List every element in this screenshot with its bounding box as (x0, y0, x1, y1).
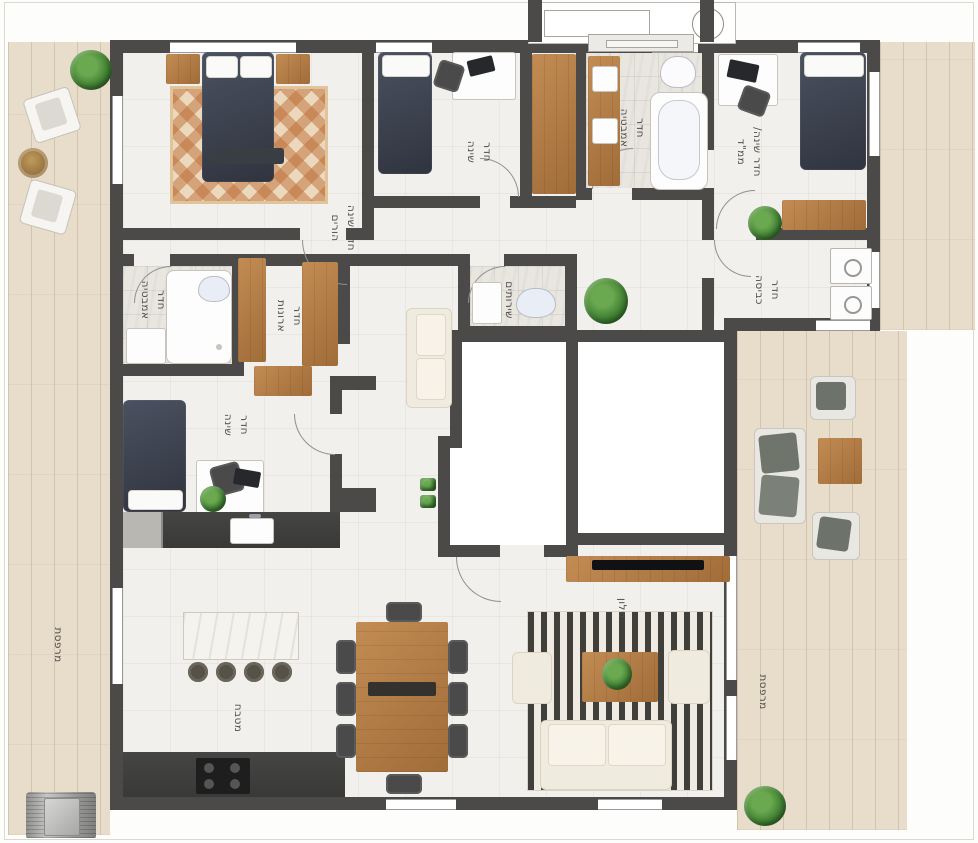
room-label-kitchen: מטבח (229, 704, 245, 732)
kitchen-island (183, 612, 299, 660)
wall-bedroom2-bottom-b (510, 196, 576, 208)
dining-chair-top (386, 602, 422, 622)
wall-bathleft-bottom (110, 364, 244, 376)
outdoor-armchair-top-cushion (816, 382, 846, 410)
dining-chair-r3 (448, 724, 468, 758)
outdoor-table (818, 438, 862, 484)
wall-wing-divider-mid (702, 188, 714, 240)
wall-bedroom2-bottom-a (362, 196, 480, 208)
wall-bath-left (576, 40, 586, 188)
round-side-table (18, 148, 48, 178)
bath-left-sink (126, 328, 166, 364)
utility-wall-stub-right (700, 0, 714, 42)
wall-core-step (438, 436, 462, 448)
room-label-bedroom3: חדר שינה (219, 414, 251, 436)
dining-chair-r2 (448, 682, 468, 716)
bar-stool-3 (244, 662, 264, 682)
stove-burner-3 (204, 779, 214, 789)
window-laundry-south (816, 320, 870, 331)
room-label-text: חדר (235, 414, 251, 436)
dining-chair-l1 (336, 640, 356, 674)
room-label-text: חדר (766, 275, 782, 305)
lounge-cushion-b (758, 474, 799, 517)
nightstand-left (166, 54, 200, 84)
mamad-pillow (804, 55, 864, 77)
hall-sofa-cushion-b (416, 358, 446, 400)
ac-panel (44, 798, 80, 836)
room-label-text: אמבטיה (136, 281, 152, 320)
utility-inner-unit (544, 10, 650, 37)
room-label-master-bedroom: חדר שינה הורים (326, 205, 358, 251)
dining-runner (368, 682, 436, 696)
room-label-wc: שירותים (500, 281, 516, 319)
room-label-text: שינה (462, 141, 478, 163)
wall-bath-bottom-a (576, 188, 592, 200)
room-label-text: חדר (631, 109, 647, 148)
dining-table (356, 622, 448, 772)
fridge (123, 512, 163, 548)
room-label-safe-room: חדר שינה/ ממ"ד (732, 127, 764, 177)
window-bottom-a (386, 799, 456, 810)
room-label-text: שינה (219, 414, 235, 436)
closet-wardrobe-right (302, 262, 338, 366)
stove-burner-4 (230, 779, 240, 789)
wall-bed3-stub-a (330, 376, 376, 390)
washing-machine (830, 248, 872, 284)
wall-core-top (450, 330, 737, 342)
lounge-cushion-a (758, 432, 800, 474)
hall-sofa-cushion-a (416, 314, 446, 356)
room-label-text: ממ"ד (732, 127, 748, 177)
closet-wardrobe-left (238, 258, 266, 362)
floor-plan: חדר שינה הורים חדר שינה חדר אמבטיה חדר ש… (0, 0, 978, 843)
wall-wing-divider-low (702, 278, 714, 331)
room-label-bathroom-left: חדר אמבטיה (136, 281, 168, 320)
bedroom3-pillow (128, 490, 183, 510)
closet-dresser (254, 366, 312, 396)
master-bench (210, 148, 284, 164)
potted-plant-balcony-right (744, 786, 786, 826)
room-label-balcony-left: מרפסת (49, 627, 65, 662)
room-label-text: חדר שינה (342, 205, 358, 251)
potted-plant-mamad (748, 206, 782, 240)
wall-corridor-a (110, 254, 134, 266)
wall-core-left-lower (438, 448, 450, 557)
wc-toilet (516, 288, 556, 318)
wall-core-bottom-left-a (438, 545, 500, 557)
window-wing-east-a (869, 72, 880, 156)
sofa-cushion-a (548, 724, 606, 766)
wall-bedroom2-right (520, 40, 532, 198)
room-label-text: ארונות (272, 300, 288, 332)
mamad-bench (782, 200, 866, 230)
room-label-balcony-right: מרפסת (754, 674, 770, 709)
potted-plant-desk (200, 486, 226, 512)
armchair-right (668, 650, 710, 704)
room-label-living-room: סלון (613, 598, 629, 618)
window-left-b (112, 588, 123, 684)
room-label-text: חדר (478, 141, 494, 163)
bar-stool-1 (188, 662, 208, 682)
room-label-closet-room: חדר ארונות (272, 300, 304, 332)
potted-plant-niche-a (420, 478, 436, 491)
room-label-bathroom-top: חדר אמבטיה (615, 109, 647, 148)
bathtub-inner (658, 100, 700, 180)
nightstand-right (276, 54, 310, 84)
room-label-text: מרפסת (49, 627, 65, 662)
utility-wall-stub-left (528, 0, 542, 42)
wall-bed3-stub-b (330, 488, 376, 512)
room-label-text: חדר (152, 281, 168, 320)
balcony-right-top-deck (880, 42, 975, 330)
wc-sink (472, 282, 502, 324)
potted-plant-coffee-table (602, 658, 632, 690)
room-label-text: חדר (288, 300, 304, 332)
dining-chair-r1 (448, 640, 468, 674)
room-label-text: מטבח (229, 704, 245, 732)
bath-top-toilet (660, 56, 696, 88)
dining-chair-l3 (336, 724, 356, 758)
room-label-text: הורים (326, 205, 342, 251)
bar-stool-4 (272, 662, 292, 682)
room-label-text: מרפסת (754, 674, 770, 709)
stair-shaft-lower (450, 448, 566, 545)
room-label-text: סלון (613, 598, 629, 618)
master-pillow-left (206, 56, 238, 78)
stove-burner-2 (230, 763, 240, 773)
sofa-cushion-b (608, 724, 666, 766)
bath-top-sink-b (592, 118, 618, 144)
dining-chair-bottom (386, 774, 422, 794)
stove (196, 758, 250, 794)
wall-master-right (362, 40, 374, 240)
dryer (830, 286, 872, 320)
potted-plant-niche-b (420, 495, 436, 508)
wall-core-bottom-right (566, 533, 737, 545)
room-label-bedroom2: חדר שינה (462, 141, 494, 163)
potted-plant-balcony-left (70, 50, 112, 90)
kitchen-faucet (249, 514, 261, 518)
shower-drain (216, 344, 222, 350)
kitchen-sink (230, 518, 274, 544)
outdoor-armchair-bottom-cushion (816, 516, 852, 552)
bath-top-sink-a (592, 66, 618, 92)
potted-plant-hall (584, 278, 628, 324)
bedroom2-pillow (382, 55, 430, 77)
bath-left-toilet (198, 276, 230, 302)
bar-stool-2 (216, 662, 236, 682)
window-left-a (112, 96, 123, 184)
hall-wardrobe (532, 54, 576, 194)
tv (592, 560, 704, 570)
wall-core-divider (566, 330, 578, 545)
stove-burner-1 (204, 763, 214, 773)
room-label-text: כביסה (750, 275, 766, 305)
room-label-text: שירותים (500, 281, 516, 319)
room-label-text: אמבטיה (615, 109, 631, 148)
utility-sliding-window-sash (606, 40, 678, 48)
armchair-left (512, 652, 552, 704)
room-label-text: חדר שינה/ (748, 127, 764, 177)
dining-chair-l2 (336, 682, 356, 716)
room-label-laundry: חדר כביסה (750, 275, 782, 305)
window-living-balcony-b (726, 696, 737, 760)
window-bottom-b (598, 799, 662, 810)
wall-master-bottom-a (110, 228, 300, 240)
master-pillow-right (240, 56, 272, 78)
wall-wc-right (565, 254, 577, 334)
stair-shaft-right (578, 342, 724, 533)
